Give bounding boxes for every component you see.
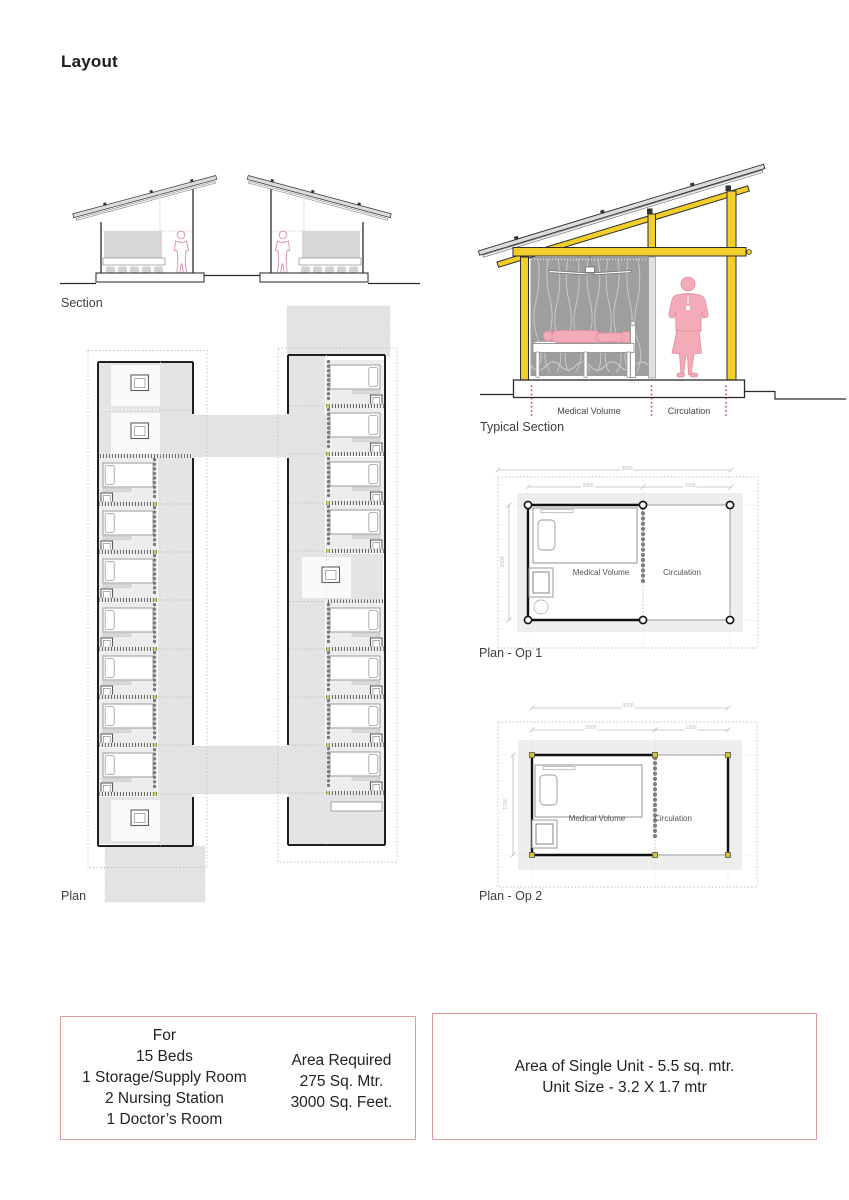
op1-medical-zone-label: Medical Volume (573, 568, 629, 577)
plan-op1-drawing (496, 468, 759, 649)
area-line: 275 Sq. Mtr. (268, 1071, 415, 1092)
op1-dim-depth: 2000 (500, 555, 506, 568)
unit-line: Unit Size - 3.2 X 1.7 mtr (433, 1077, 816, 1098)
op2-dim-total: 3200 (621, 703, 634, 709)
connector-bottom (160, 746, 328, 794)
op2-dim-circulation: 1200 (684, 725, 697, 731)
typical-section-drawing (478, 161, 846, 416)
req-line: For (61, 1025, 268, 1046)
partition-wall (649, 257, 656, 378)
floor-plan-drawing (88, 306, 397, 902)
plan-op1-label: Plan - Op 1 (479, 646, 542, 660)
area-required-list: Area Required 275 Sq. Mtr. 3000 Sq. Feet… (268, 1017, 415, 1139)
page-title: Layout (61, 52, 118, 72)
stool-plan (534, 600, 548, 614)
right-column (727, 191, 736, 382)
op1-dim-circulation: 1500 (683, 483, 696, 489)
architectural-layout-sheet: Layout Section Typical Section Medical V… (0, 0, 849, 1200)
req-line: 2 Nursing Station (61, 1088, 268, 1109)
op2-dim-depth: 1700 (503, 797, 509, 810)
section-drawing (60, 173, 420, 283)
unit-info-box: Area of Single Unit - 5.5 sq. mtr. Unit … (432, 1013, 817, 1140)
nursing-station-room (289, 554, 383, 601)
requirements-list: For 15 Beds 1 Storage/Supply Room 2 Nurs… (61, 1017, 268, 1139)
req-line: 15 Beds (61, 1046, 268, 1067)
requirements-box: For 15 Beds 1 Storage/Supply Room 2 Nurs… (60, 1016, 416, 1140)
side-table-plan (529, 568, 553, 597)
op1-circulation-zone-label: Circulation (663, 568, 701, 577)
typical-section-label: Typical Section (480, 420, 564, 434)
req-line: 1 Storage/Supply Room (61, 1067, 268, 1088)
bed-plan (533, 508, 637, 563)
section-right (246, 173, 391, 282)
corridor-stub-bottom (105, 846, 205, 902)
plinth (514, 380, 745, 398)
nursing-station-room (98, 362, 192, 409)
nursing-station-room (98, 410, 192, 457)
op1-dim-total: 3500 (620, 466, 633, 472)
doctors-room (98, 797, 192, 844)
op2-dim-medical: 2000 (584, 725, 597, 731)
plan-op2-label: Plan - Op 2 (479, 889, 542, 903)
tie-beam (513, 248, 746, 257)
area-line: Area Required (268, 1050, 415, 1071)
unit-line: Area of Single Unit - 5.5 sq. mtr. (433, 1056, 816, 1077)
left-column (521, 257, 529, 382)
nurse-figure (669, 277, 708, 377)
op1-dim-medical: 2000 (581, 483, 594, 489)
section-left (72, 173, 217, 282)
op2-circulation-zone-label: Circulation (654, 814, 692, 823)
area-line: 3000 Sq. Feet. (268, 1092, 415, 1113)
section-label: Section (61, 296, 103, 310)
side-table-plan (532, 820, 557, 848)
plan-label: Plan (61, 889, 86, 903)
ts-circulation-zone-label: Circulation (668, 406, 711, 416)
plan-op2-drawing (498, 706, 757, 888)
req-line: 1 Doctor’s Room (61, 1109, 268, 1130)
corridor-stub-top (287, 306, 390, 356)
op2-medical-zone-label: Medical Volume (569, 814, 625, 823)
mid-column (648, 214, 656, 250)
bed-plan (535, 765, 642, 817)
ts-medical-zone-label: Medical Volume (557, 406, 621, 416)
storage-room (288, 795, 385, 844)
